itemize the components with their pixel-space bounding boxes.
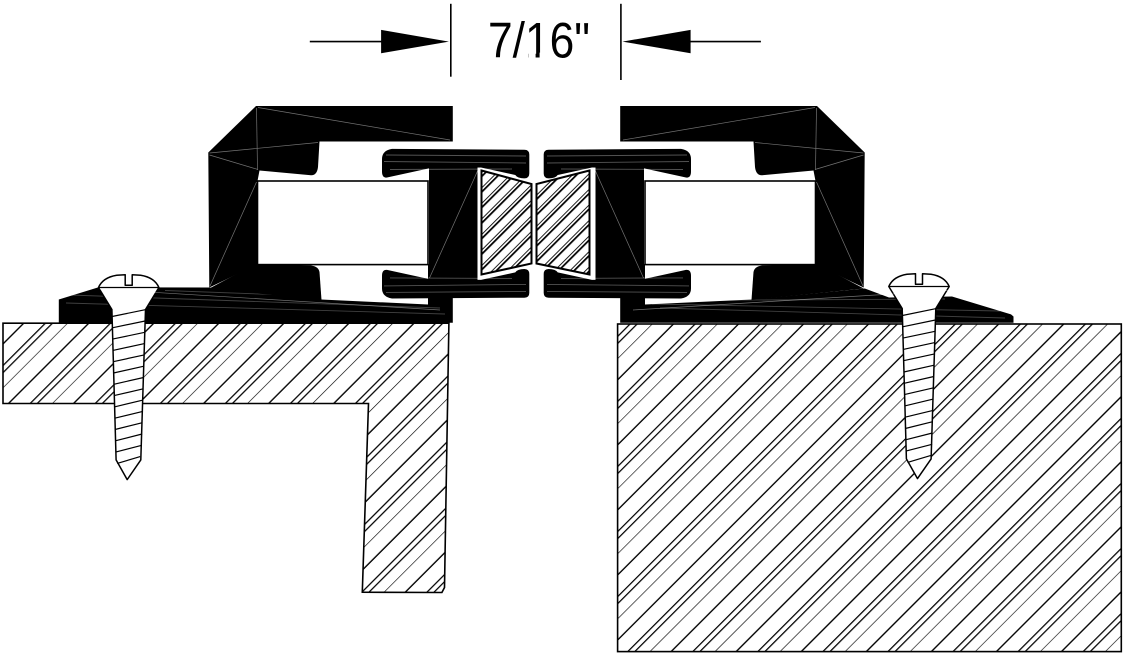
svg-text:7/16": 7/16" xyxy=(488,13,590,69)
